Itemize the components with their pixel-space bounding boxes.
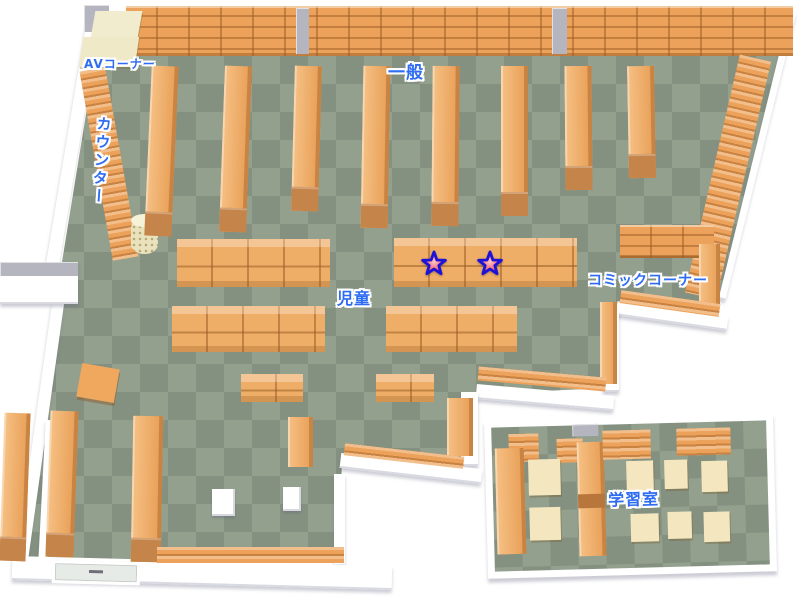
bookshelf (447, 398, 473, 456)
bookshelf (627, 66, 656, 178)
kiosk-box (283, 487, 301, 511)
star-marker-icon[interactable] (475, 248, 505, 278)
pillar (296, 8, 309, 54)
study-table (703, 511, 730, 542)
bookshelf (172, 306, 325, 352)
area-label-av-corner: AVコーナー (84, 55, 156, 72)
study-table (667, 511, 692, 539)
wall-stub-top (0, 262, 78, 276)
study-table (664, 460, 688, 490)
study-partition (572, 424, 598, 437)
bookshelf (288, 417, 313, 467)
bookshelf-top-band (126, 6, 793, 56)
study-table (701, 460, 728, 492)
kiosk-box (212, 489, 235, 516)
door-handle (89, 570, 103, 573)
library-floor-map: 学習室 AVコーナー 一般 カウンター 児童 コミックコーナー (0, 0, 800, 600)
bookshelf (495, 448, 527, 555)
study-table (528, 459, 561, 496)
bookshelf (564, 66, 592, 190)
bookshelf (131, 416, 164, 563)
bookshelf (219, 66, 252, 233)
study-table (630, 513, 659, 542)
bookshelf (361, 66, 391, 228)
bookshelf (600, 302, 617, 384)
study-table (529, 507, 561, 541)
bookshelf (386, 306, 517, 352)
bookshelf (45, 411, 78, 558)
bookshelf (241, 374, 303, 402)
reading-table (76, 363, 119, 403)
area-label-study-room: 学習室 (608, 485, 660, 510)
study-room: 学習室 (484, 413, 777, 579)
bookshelf (0, 413, 31, 562)
entrance-door[interactable] (52, 560, 141, 585)
star-marker-icon[interactable] (419, 248, 449, 278)
wall-stub (0, 262, 78, 304)
bookshelf (291, 66, 322, 212)
bookshelf (501, 66, 528, 216)
bookshelf (431, 66, 459, 226)
area-label-general: 一般 (388, 58, 424, 83)
divider-gap (578, 494, 605, 509)
bookshelf (676, 427, 731, 455)
area-label-comic-corner: コミックコーナー (588, 270, 708, 290)
area-label-children: 児童 (337, 285, 371, 309)
av-desk (91, 11, 143, 38)
bookshelf (602, 429, 651, 459)
bookshelf (177, 239, 330, 287)
bookshelf-low (157, 547, 344, 563)
bookshelf (376, 374, 434, 402)
pillar (552, 8, 567, 54)
